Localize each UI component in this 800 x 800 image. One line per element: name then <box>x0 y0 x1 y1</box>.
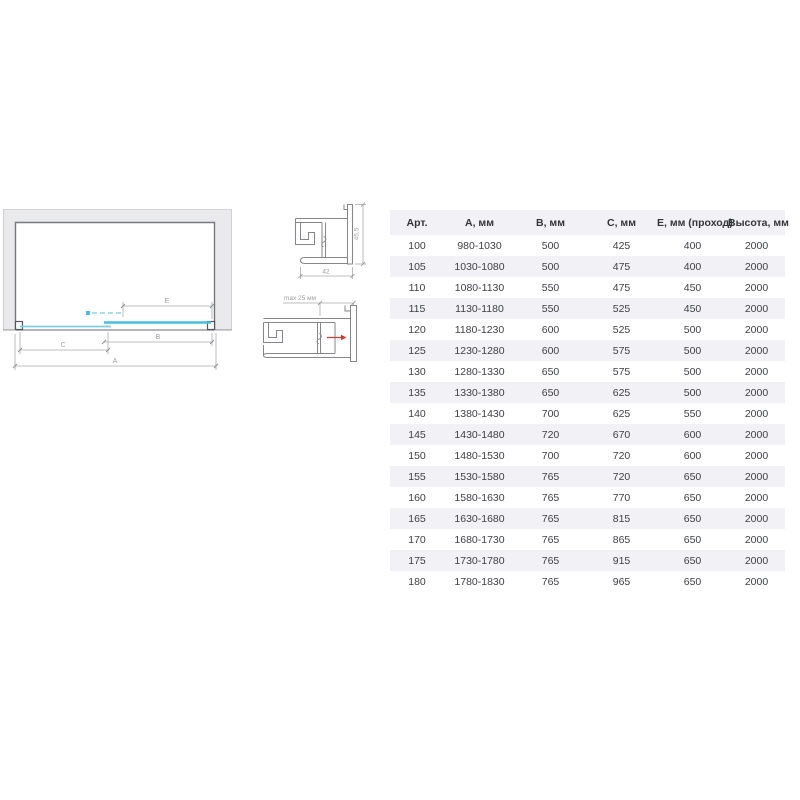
table-cell: 600 <box>657 424 728 445</box>
table-cell: 2000 <box>728 550 785 571</box>
table-row: 1501480-15307007206002000 <box>390 445 785 466</box>
table-cell: 1030-1080 <box>444 256 515 277</box>
table-cell: 500 <box>657 340 728 361</box>
table-cell: 700 <box>515 445 586 466</box>
table-cell: 1180-1230 <box>444 319 515 340</box>
table-cell: 1680-1730 <box>444 529 515 550</box>
table-cell: 965 <box>586 571 657 592</box>
table-cell: 575 <box>586 340 657 361</box>
table-cell: 160 <box>390 487 444 508</box>
table-cell: 650 <box>515 361 586 382</box>
table-cell: 2000 <box>728 235 785 256</box>
table-cell: 2000 <box>728 529 785 550</box>
table-cell: 550 <box>515 277 586 298</box>
table-cell: 1780-1830 <box>444 571 515 592</box>
adjustment-arrow-head <box>341 335 347 340</box>
table-cell: 700 <box>515 403 586 424</box>
table-cell: 1380-1430 <box>444 403 515 424</box>
table-cell: 1130-1180 <box>444 298 515 319</box>
table-cell: 1530-1580 <box>444 466 515 487</box>
table-cell: 2000 <box>728 508 785 529</box>
dim-label-a: A <box>113 358 118 365</box>
profile-top-width-label: 42 <box>322 269 330 276</box>
table-cell: 650 <box>657 508 728 529</box>
table-cell: 500 <box>657 319 728 340</box>
table-cell: 2000 <box>728 340 785 361</box>
profile-top-height-label: 45,5 <box>354 227 361 240</box>
table-cell: 525 <box>586 298 657 319</box>
table-header: Арт.А, ммВ, ммС, ммЕ, мм (проход)Высота,… <box>390 210 785 235</box>
column-header: А, мм <box>444 210 515 235</box>
table-cell: 1280-1330 <box>444 361 515 382</box>
table-cell: 550 <box>657 403 728 424</box>
wall-inner-edge <box>16 223 215 330</box>
table-cell: 2000 <box>728 382 785 403</box>
table-cell: 2000 <box>728 424 785 445</box>
table-cell: 400 <box>657 235 728 256</box>
table-cell: 525 <box>586 319 657 340</box>
table-cell: 625 <box>586 403 657 424</box>
table-cell: 105 <box>390 256 444 277</box>
table-row: 1651630-16807658156502000 <box>390 508 785 529</box>
table-body: 100980-103050042540020001051030-10805004… <box>390 235 785 592</box>
table-cell: 650 <box>657 571 728 592</box>
table-row: 1351330-13806506255002000 <box>390 382 785 403</box>
table-cell: 670 <box>586 424 657 445</box>
table-cell: 120 <box>390 319 444 340</box>
dim-label-e: E <box>165 298 170 305</box>
table-cell: 2000 <box>728 319 785 340</box>
table-cell: 125 <box>390 340 444 361</box>
table-cell: 2000 <box>728 361 785 382</box>
table-cell: 865 <box>586 529 657 550</box>
column-header: С, мм <box>586 210 657 235</box>
table-cell: 720 <box>515 424 586 445</box>
table-row: 100980-10305004254002000 <box>390 235 785 256</box>
table-cell: 575 <box>586 361 657 382</box>
door-open-end-marker <box>86 311 90 315</box>
table-cell: 2000 <box>728 403 785 424</box>
table-cell: 625 <box>586 382 657 403</box>
table-cell: 180 <box>390 571 444 592</box>
table-cell: 765 <box>515 466 586 487</box>
dim-label-b: B <box>156 334 161 341</box>
table-cell: 140 <box>390 403 444 424</box>
table-row: 1101080-11305504754502000 <box>390 277 785 298</box>
table-cell: 475 <box>586 256 657 277</box>
table-cell: 135 <box>390 382 444 403</box>
table-cell: 650 <box>657 466 728 487</box>
left-bracket <box>16 322 23 330</box>
sizes-table-container: Арт.А, ммВ, ммС, ммЕ, мм (проход)Высота,… <box>390 210 785 592</box>
table-header-row: Арт.А, ммВ, ммС, ммЕ, мм (проход)Высота,… <box>390 210 785 235</box>
sizes-table: Арт.А, ммВ, ммС, ммЕ, мм (проход)Высота,… <box>390 210 785 592</box>
table-cell: 165 <box>390 508 444 529</box>
table-row: 1551530-15807657206502000 <box>390 466 785 487</box>
table-cell: 550 <box>515 298 586 319</box>
table-cell: 145 <box>390 424 444 445</box>
table-cell: 1630-1680 <box>444 508 515 529</box>
table-cell: 110 <box>390 277 444 298</box>
table-cell: 815 <box>586 508 657 529</box>
installation-diagram: E B C A 45,5 42 max 25 мм <box>0 190 390 400</box>
column-header: Е, мм (проход) <box>657 210 728 235</box>
table-row: 1701680-17307658656502000 <box>390 529 785 550</box>
table-cell: 475 <box>586 277 657 298</box>
profile-bottom-max-label: max 25 мм <box>284 295 317 302</box>
table-cell: 2000 <box>728 277 785 298</box>
table-cell: 450 <box>657 298 728 319</box>
table-cell: 150 <box>390 445 444 466</box>
wall-niche <box>4 210 232 330</box>
column-header: В, мм <box>515 210 586 235</box>
table-cell: 425 <box>586 235 657 256</box>
table-row: 1151130-11805505254502000 <box>390 298 785 319</box>
column-header: Высота, мм <box>728 210 785 235</box>
table-cell: 915 <box>586 550 657 571</box>
table-cell: 765 <box>515 571 586 592</box>
table-cell: 2000 <box>728 445 785 466</box>
diagram-svg: E B C A 45,5 42 max 25 мм <box>0 190 390 400</box>
table-cell: 170 <box>390 529 444 550</box>
table-cell: 770 <box>586 487 657 508</box>
table-cell: 600 <box>515 319 586 340</box>
table-cell: 1730-1780 <box>444 550 515 571</box>
table-cell: 1230-1280 <box>444 340 515 361</box>
table-cell: 600 <box>515 340 586 361</box>
table-cell: 1330-1380 <box>444 382 515 403</box>
table-cell: 1080-1130 <box>444 277 515 298</box>
table-cell: 720 <box>586 445 657 466</box>
table-cell: 1430-1480 <box>444 424 515 445</box>
table-cell: 765 <box>515 487 586 508</box>
table-cell: 2000 <box>728 256 785 277</box>
dim-label-c: C <box>60 342 65 349</box>
table-cell: 175 <box>390 550 444 571</box>
table-cell: 500 <box>515 235 586 256</box>
table-cell: 500 <box>515 256 586 277</box>
table-row: 1251230-12806005755002000 <box>390 340 785 361</box>
table-cell: 650 <box>657 550 728 571</box>
table-row: 1401380-14307006255502000 <box>390 403 785 424</box>
table-cell: 765 <box>515 508 586 529</box>
table-cell: 720 <box>586 466 657 487</box>
table-cell: 500 <box>657 382 728 403</box>
table-cell: 2000 <box>728 466 785 487</box>
table-cell: 650 <box>515 382 586 403</box>
profile-section-top <box>296 205 353 265</box>
table-cell: 765 <box>515 550 586 571</box>
table-cell: 2000 <box>728 487 785 508</box>
table-row: 1301280-13306505755002000 <box>390 361 785 382</box>
table-cell: 650 <box>657 487 728 508</box>
table-row: 1801780-18307659656502000 <box>390 571 785 592</box>
table-cell: 1480-1530 <box>444 445 515 466</box>
table-row: 1751730-17807659156502000 <box>390 550 785 571</box>
table-cell: 500 <box>657 361 728 382</box>
table-row: 1051030-10805004754002000 <box>390 256 785 277</box>
table-cell: 2000 <box>728 571 785 592</box>
table-cell: 765 <box>515 529 586 550</box>
table-cell: 155 <box>390 466 444 487</box>
table-row: 1201180-12306005255002000 <box>390 319 785 340</box>
table-row: 1451430-14807206706002000 <box>390 424 785 445</box>
column-header: Арт. <box>390 210 444 235</box>
profile-section-bottom <box>264 306 357 362</box>
spec-sheet-page: { "diagram": { "dimension_labels": { "a"… <box>0 0 800 800</box>
table-cell: 2000 <box>728 298 785 319</box>
table-cell: 1580-1630 <box>444 487 515 508</box>
table-cell: 450 <box>657 277 728 298</box>
table-cell: 980-1030 <box>444 235 515 256</box>
table-cell: 600 <box>657 445 728 466</box>
table-cell: 650 <box>657 529 728 550</box>
table-cell: 100 <box>390 235 444 256</box>
table-cell: 115 <box>390 298 444 319</box>
table-cell: 400 <box>657 256 728 277</box>
table-row: 1601580-16307657706502000 <box>390 487 785 508</box>
table-cell: 130 <box>390 361 444 382</box>
